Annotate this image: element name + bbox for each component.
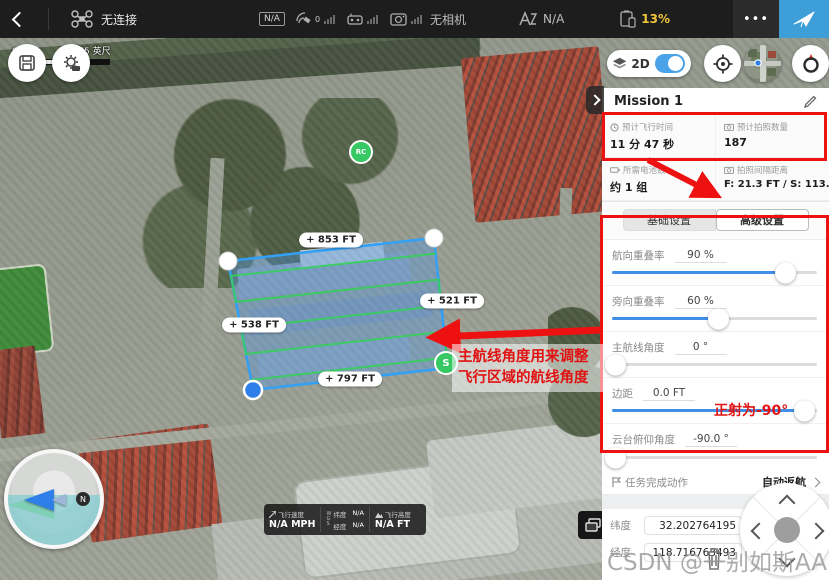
minimap-thumbnail (744, 45, 781, 82)
gear-icon (61, 53, 81, 73)
altitude-icon (375, 511, 383, 518)
lat-value: N/A (352, 509, 364, 519)
side-overlap-input[interactable]: 60 % (675, 295, 727, 309)
advanced-settings-sliders: 航向重叠率 90 % 旁向重叠率 60 % 主航线角度 0 ° (602, 240, 829, 470)
satellite-icon (295, 11, 313, 27)
more-menu-button[interactable]: ••• (733, 0, 779, 38)
stat-battery-count: 所需电池数 约 1 组 (602, 158, 716, 201)
satellite-count: 0 (315, 15, 320, 24)
app-window: + 853 FT + 521 FT + 538 FT + 797 FT RC S… (0, 0, 829, 580)
telemetry-gps: WGS 纬度N/A 经度N/A (321, 504, 368, 535)
latitude-row: 纬度 (610, 516, 742, 535)
dpad-left-button[interactable] (751, 523, 768, 540)
connection-status: 无连接 (101, 11, 137, 28)
tab-advanced-settings[interactable]: 高级设置 (716, 209, 809, 231)
mission-title: Mission 1 (614, 94, 804, 109)
compass-aircraft-arrow (24, 489, 54, 511)
rc-location-marker: RC (349, 140, 373, 164)
chevron-right-icon (811, 477, 821, 487)
slider-row-gimbal-pitch: 云台俯仰角度 -90.0 ° (602, 424, 829, 470)
takeoff-button[interactable] (779, 0, 829, 38)
side-overlap-slider[interactable] (612, 317, 817, 320)
map-mode-pill[interactable]: 2D (607, 50, 691, 77)
slider-thumb[interactable] (775, 262, 796, 283)
crosshair-icon (713, 54, 733, 74)
device-battery-icon (620, 10, 636, 28)
slider-row-course-angle: 主航线角度 0 ° (602, 332, 829, 378)
minimap-button[interactable] (744, 45, 781, 82)
slider-thumb[interactable] (708, 308, 729, 329)
slider-thumb[interactable] (794, 400, 815, 421)
camera-icon (724, 123, 734, 131)
mission-stats: 预计飞行时间 11 分 47 秒 预计拍照数量 187 所需电池数 约 1 组 (602, 115, 829, 202)
tab-basic-settings[interactable]: 基础设置 (623, 209, 716, 231)
gimbal-pitch-input[interactable]: -90.0 ° (685, 433, 737, 447)
dpad-center[interactable] (774, 517, 800, 543)
mission-header: Mission 1 (602, 88, 829, 115)
battery-icon (610, 166, 620, 174)
front-overlap-slider[interactable] (612, 271, 817, 274)
save-icon (18, 54, 36, 72)
speed-value: N/A MPH (269, 519, 315, 530)
slider-thumb[interactable] (605, 447, 626, 468)
compass-north-badge: N (76, 492, 90, 506)
map-2d-label: 2D (631, 57, 649, 71)
locate-me-button[interactable] (704, 45, 741, 82)
back-button[interactable] (0, 14, 38, 25)
course-angle-input[interactable]: 0 ° (675, 341, 727, 355)
airplane-icon (792, 8, 816, 30)
divider (48, 8, 49, 30)
stat-flight-time: 预计飞行时间 11 分 47 秒 (602, 115, 716, 158)
camera-status: 无相机 (430, 11, 466, 28)
remote-controller-icon (347, 12, 363, 26)
stat-photo-interval: 拍照间隔距离 F: 21.3 FT / S: 113.6 FT (716, 158, 829, 201)
camera-signal-icon (390, 12, 407, 26)
drone-icon (71, 9, 93, 29)
edit-pencil-icon[interactable] (804, 95, 817, 108)
settings-tabs: 基础设置 高级设置 (602, 202, 829, 240)
compass-icon (800, 53, 822, 75)
altitude-value: N/A FT (375, 519, 411, 530)
gps-na-badge: N/A (259, 12, 285, 26)
flag-icon (612, 477, 621, 487)
signal-bars-icon (411, 15, 422, 24)
margin-input[interactable]: 0.0 FT (643, 387, 695, 401)
edge-length-label: + 797 FT (318, 372, 382, 387)
camera-settings-button[interactable] (52, 44, 90, 82)
toggle-knob (668, 56, 683, 71)
panel-collapse-handle[interactable] (586, 86, 604, 114)
edge-length-label: + 521 FT (420, 294, 484, 309)
picture-in-picture-icon (585, 518, 601, 532)
watermark: CSDN @一别如斯AA (607, 543, 827, 577)
clock-icon (610, 123, 619, 132)
stat-photo-count: 预计拍照数量 187 (716, 115, 829, 158)
flight-mode-icon (518, 11, 538, 27)
dpad-right-button[interactable] (808, 523, 825, 540)
battery-percent: 13% (641, 12, 670, 26)
dpad-up-button[interactable] (779, 495, 796, 512)
course-angle-slider[interactable] (612, 363, 817, 366)
annotation-note: 主航线角度用来调整 飞行区域的航线角度 (452, 344, 604, 392)
annotation-ortho-note: 正射为-90° (714, 400, 788, 420)
telemetry-altitude: 飞行高度 N/A FT (370, 504, 416, 535)
flight-mode-value: N/A (543, 12, 564, 26)
slider-thumb[interactable] (605, 354, 626, 375)
top-status-bar: 无连接 N/A 0 无相机 N/A (0, 0, 829, 38)
latitude-field[interactable] (644, 516, 742, 535)
compass-reset-button[interactable] (792, 45, 829, 82)
signal-bars-icon (324, 15, 335, 24)
slider-row-side-overlap: 旁向重叠率 60 % (602, 286, 829, 332)
telemetry-speed: 飞行速度 N/A MPH (264, 504, 320, 535)
gimbal-pitch-slider[interactable] (612, 456, 817, 459)
edge-length-label: + 853 FT (299, 233, 363, 248)
lon-value: N/A (352, 521, 364, 531)
slider-row-front-overlap: 航向重叠率 90 % (602, 240, 829, 286)
wgs-label: WGS (326, 512, 331, 527)
edge-length-label: + 538 FT (222, 318, 286, 333)
map-2d-toggle[interactable] (655, 54, 685, 73)
save-mission-button[interactable] (8, 44, 46, 82)
layers-icon (613, 57, 626, 70)
signal-bars-icon (367, 15, 378, 24)
speed-arrow-icon (269, 511, 276, 518)
camera-icon (724, 166, 734, 174)
front-overlap-input[interactable]: 90 % (675, 249, 727, 263)
telemetry-bar: 飞行速度 N/A MPH WGS 纬度N/A 经度N/A 飞行高度 N/A FT (264, 504, 426, 535)
